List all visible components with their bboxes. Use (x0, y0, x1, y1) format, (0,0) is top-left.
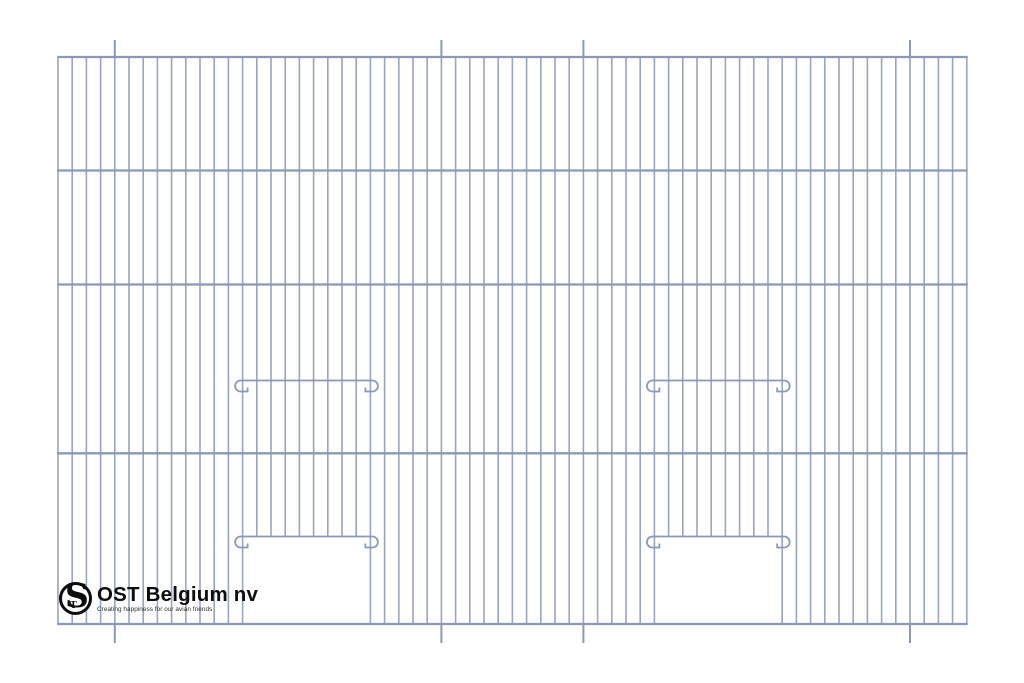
cage-front-panel-drawing (0, 0, 1024, 683)
drawing-canvas: S T OST Belgium nv Creating happiness fo… (0, 0, 1024, 683)
ost-logo-icon: S T (59, 582, 92, 615)
brand-logo: S T OST Belgium nv Creating happiness fo… (59, 582, 258, 615)
logo-monogram-t: T (70, 602, 77, 611)
company-tagline: Creating happiness for our avian friends (97, 606, 258, 614)
perch-bar (647, 537, 790, 548)
company-name: OST Belgium nv (97, 585, 258, 605)
perch-bar (235, 537, 378, 548)
brand-text-block: OST Belgium nv Creating happiness for ou… (97, 582, 258, 614)
